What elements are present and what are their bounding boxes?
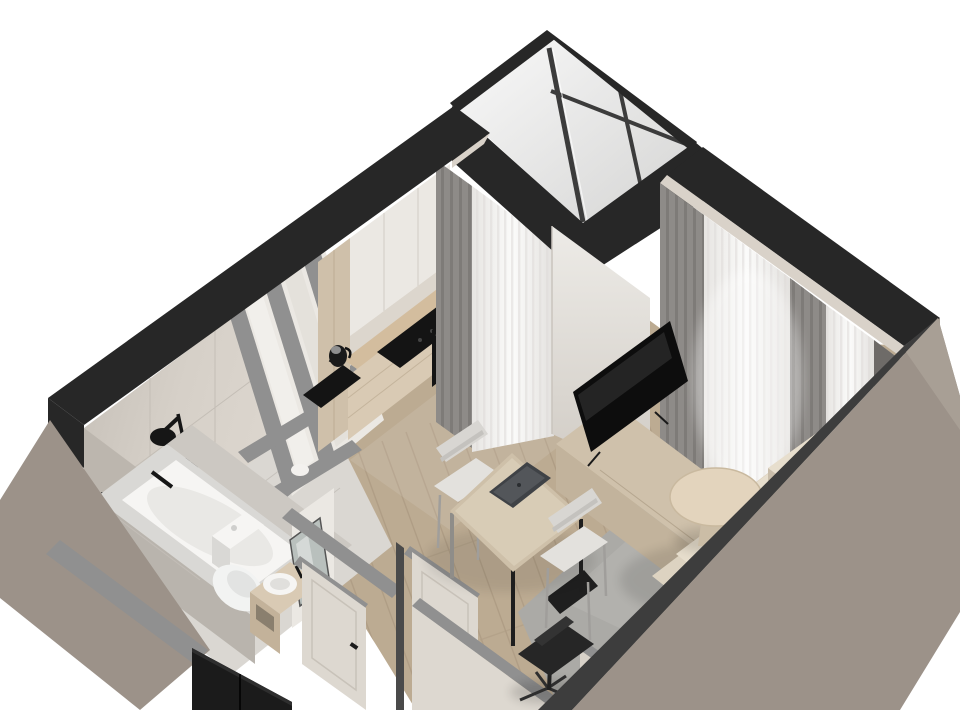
flush-button bbox=[231, 525, 237, 531]
apartment-floorplan-render bbox=[0, 0, 960, 710]
toilet-paper-roll bbox=[291, 464, 309, 476]
isometric-scene bbox=[0, 0, 960, 710]
door-frame bbox=[396, 542, 404, 710]
